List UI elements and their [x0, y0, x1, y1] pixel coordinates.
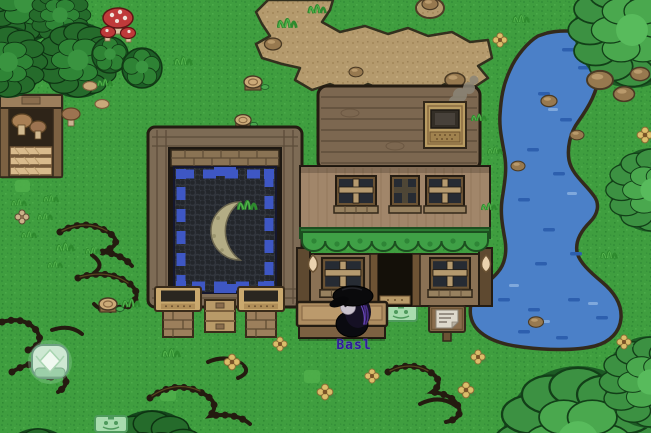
stamp-tile	[385, 305, 417, 321]
ground-floor	[297, 248, 492, 306]
lower-window-right	[428, 258, 472, 297]
note-icon	[436, 310, 458, 328]
left-wing	[148, 127, 302, 307]
upper-window-right	[424, 176, 466, 213]
stamp-tile	[95, 416, 127, 432]
bush	[122, 48, 162, 88]
upper-window-middle	[389, 176, 421, 213]
second-floor	[300, 166, 490, 236]
save-crystal[interactable]	[28, 340, 72, 384]
door[interactable]	[370, 254, 420, 306]
supply-crate[interactable]	[205, 300, 235, 332]
moon-banner	[174, 167, 276, 293]
well[interactable]	[0, 95, 62, 177]
upper-window-left	[334, 176, 378, 213]
game-scene: Basl	[0, 0, 651, 433]
player-name-label: Basl	[336, 338, 371, 353]
game-viewport: Basl	[0, 0, 651, 433]
